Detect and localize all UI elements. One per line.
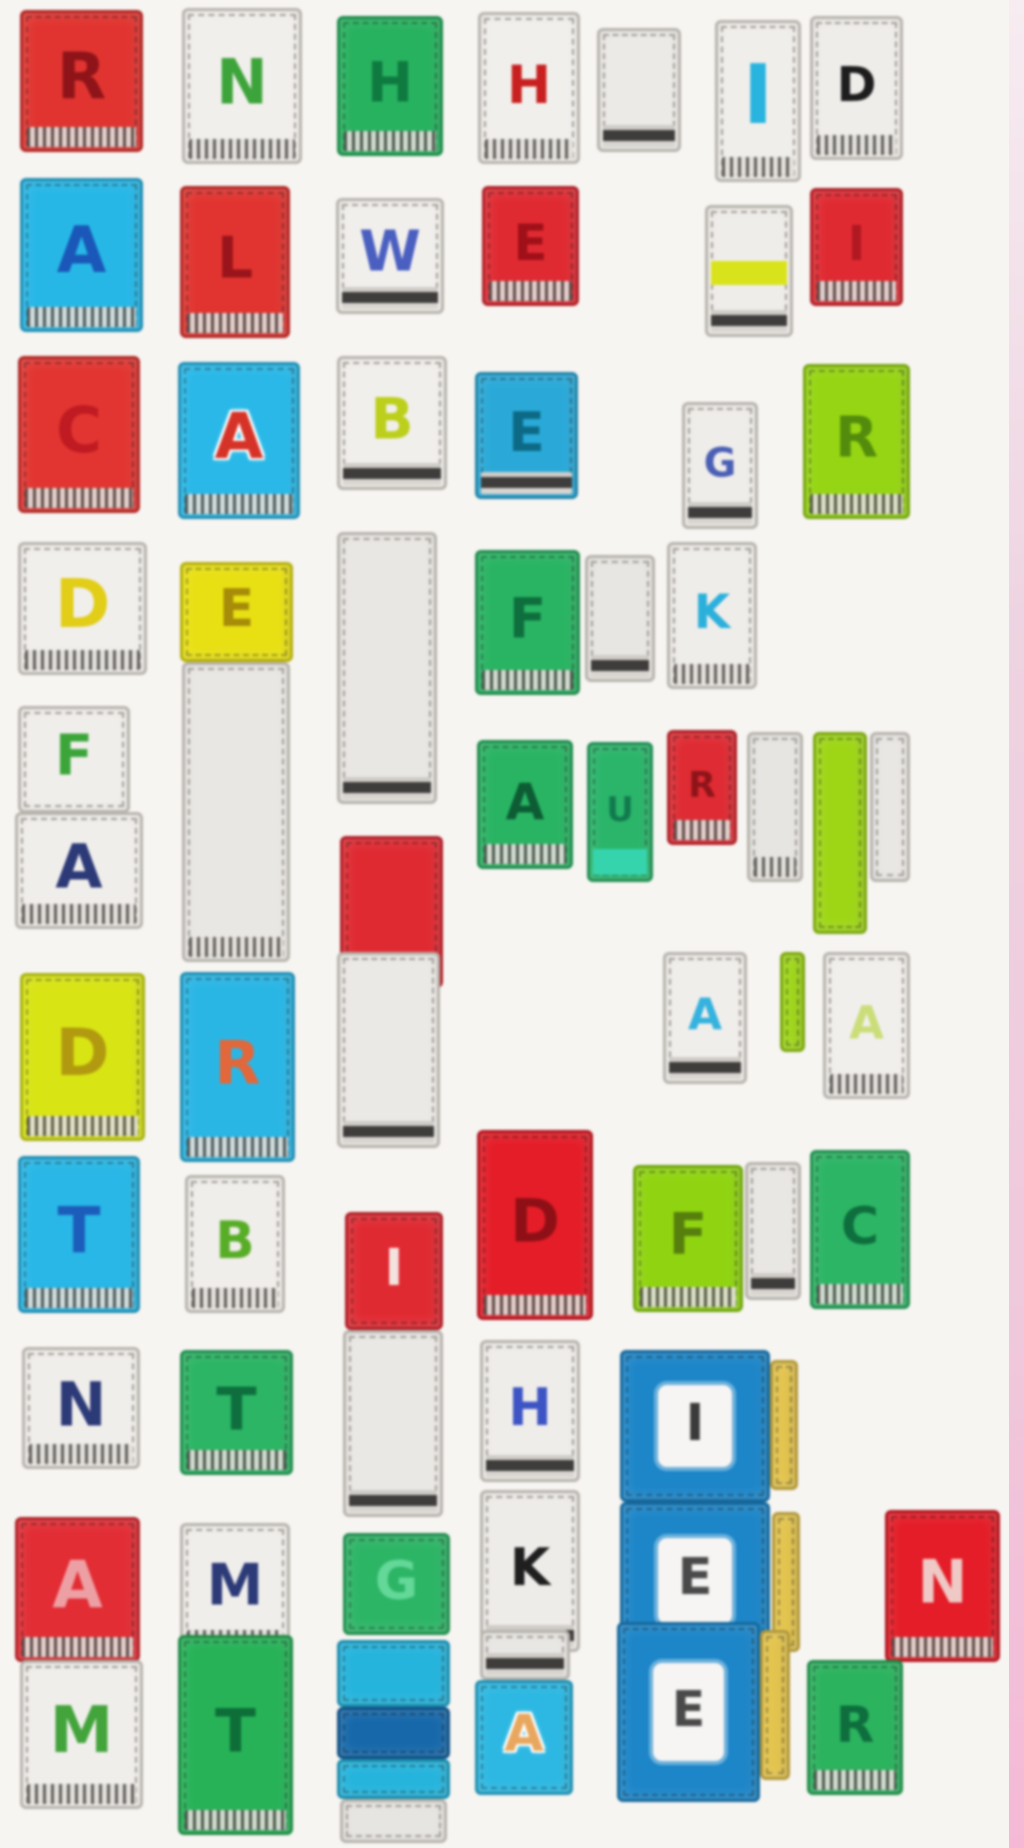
block-fringe	[486, 1653, 564, 1675]
block-fringe	[344, 131, 436, 151]
letter-block-k: K	[667, 542, 757, 689]
block-letter: T	[58, 1199, 101, 1262]
letter-block-a: A	[475, 1680, 573, 1795]
block-fringe	[189, 139, 295, 159]
blank-block	[813, 732, 867, 934]
blank-block	[340, 1799, 447, 1843]
block-letter: C	[56, 399, 102, 462]
block-letter: D	[510, 1191, 560, 1251]
block-letter: H	[508, 1382, 552, 1434]
block-fringe	[817, 281, 896, 301]
letter-block-c: C	[18, 356, 140, 513]
block-letter: B	[370, 391, 413, 448]
letter-block-t: T	[18, 1156, 140, 1313]
letter-block-t: T	[180, 1350, 293, 1475]
letter-block-h: H	[480, 1340, 580, 1482]
block-letter: E	[513, 218, 547, 268]
block-letter: R	[214, 1033, 260, 1093]
block-fringe	[669, 1057, 741, 1079]
block-fringe	[674, 820, 730, 840]
letter-block-a: A	[15, 1517, 140, 1662]
letter-block-a: A	[20, 178, 143, 332]
block-letter: A	[504, 1709, 543, 1760]
letter-block-i: I	[810, 188, 903, 306]
block-fringe	[688, 502, 752, 524]
block-fringe	[343, 1121, 434, 1143]
letter-block-n: N	[182, 8, 302, 164]
cube-face: E	[658, 1538, 733, 1623]
block-letter: B	[215, 1215, 255, 1267]
block-fringe	[27, 307, 136, 327]
block-letter: E	[672, 1685, 705, 1734]
block-letter: I	[743, 55, 774, 137]
letter-block-n: N	[885, 1510, 1000, 1662]
block-letter: N	[917, 1552, 967, 1612]
blank-block	[705, 205, 793, 337]
block-fringe	[722, 157, 794, 177]
block-letter: R	[57, 45, 106, 109]
block-fringe	[187, 1137, 288, 1157]
block-letter: N	[55, 1374, 106, 1435]
block-letter: A	[55, 836, 102, 897]
letter-block-i: I	[715, 20, 801, 182]
block-fringe	[751, 1273, 795, 1295]
letter-block-f: F	[18, 706, 130, 813]
block-letter: A	[57, 219, 107, 283]
letter-block-r: R	[667, 730, 737, 845]
block-letter: H	[507, 58, 551, 111]
blank-block	[337, 952, 440, 1148]
block-letter: E	[508, 405, 545, 459]
color-band	[711, 261, 787, 285]
letter-block-l: L	[180, 186, 290, 338]
letter-block-b: B	[337, 356, 447, 490]
block-letter: I	[848, 220, 866, 268]
letter-block-i: I	[345, 1212, 443, 1330]
block-fringe	[817, 1284, 903, 1304]
block-fringe	[814, 1770, 896, 1790]
block-fringe	[674, 664, 750, 684]
block-letter: D	[837, 61, 877, 109]
block-fringe	[27, 1116, 138, 1136]
block-fringe	[187, 1450, 286, 1470]
block-fringe	[25, 650, 140, 670]
letter-block-g: G	[682, 402, 758, 529]
block-fringe	[711, 310, 787, 332]
block-letter: A	[849, 1000, 884, 1045]
block-letter: H	[367, 55, 413, 110]
blank-block	[182, 662, 290, 962]
block-fringe	[185, 494, 293, 514]
block-fringe	[342, 287, 438, 309]
block-letter: I	[385, 1242, 404, 1293]
blank-block	[585, 555, 655, 682]
blank-block	[337, 1707, 450, 1759]
block-letter: R	[688, 767, 716, 803]
blank-block	[480, 1630, 570, 1680]
block-letter: A	[506, 777, 545, 827]
block-letter: D	[56, 1021, 110, 1086]
block-letter: K	[694, 589, 730, 636]
blank-block	[597, 28, 681, 152]
letter-blocks-collage: RNHHIDALWEICABEGRDEFKFAAURDRAATBIDFCNTHI…	[0, 0, 1024, 1848]
letter-block-r: R	[20, 10, 143, 152]
letter-block-r: R	[807, 1660, 903, 1795]
blank-block	[337, 1640, 450, 1707]
block-letter: T	[215, 1701, 256, 1761]
letter-block-t: T	[178, 1635, 293, 1835]
letter-block-r: R	[180, 972, 295, 1162]
letter-block-a: A	[15, 812, 143, 929]
block-fringe	[591, 655, 649, 677]
letter-block-m: M	[20, 1660, 143, 1809]
blank-block	[747, 732, 803, 882]
blank-block	[337, 532, 437, 804]
letter-block-d: D	[477, 1130, 593, 1320]
block-fringe	[754, 857, 796, 877]
block-fringe	[29, 1444, 133, 1464]
block-fringe	[343, 777, 431, 799]
letter-block-f: F	[475, 550, 580, 695]
block-fringe	[482, 670, 573, 690]
block-letter: A	[215, 405, 264, 468]
letter-block-r: R	[803, 364, 910, 519]
blank-block	[745, 1162, 801, 1300]
letter-block-b: B	[185, 1175, 285, 1313]
block-letter: F	[55, 728, 93, 784]
block-fringe	[185, 1810, 286, 1830]
block-letter: G	[375, 1554, 419, 1607]
letter-block-a: A	[178, 362, 300, 519]
letter-block-d: D	[810, 16, 903, 160]
block-fringe	[25, 488, 133, 508]
blank-block	[343, 1330, 443, 1517]
letter-block-e: E	[482, 186, 579, 306]
letter-block-n: N	[22, 1347, 140, 1469]
block-letter: K	[510, 1542, 550, 1594]
blank-block	[760, 1630, 790, 1780]
block-letter: M	[50, 1699, 114, 1763]
letter-block-d: D	[20, 973, 145, 1141]
block-letter: D	[55, 571, 111, 638]
letter-block-i: I	[620, 1350, 770, 1502]
block-letter: A	[688, 993, 722, 1037]
letter-block-u: U	[587, 742, 653, 882]
block-fringe	[349, 1490, 437, 1512]
letter-block-h: H	[337, 16, 443, 156]
block-fringe	[27, 127, 136, 147]
letter-block-e: E	[617, 1622, 760, 1802]
block-letter: C	[841, 1200, 879, 1252]
block-letter: U	[606, 793, 634, 827]
block-letter: G	[704, 443, 737, 483]
block-fringe	[481, 472, 572, 494]
letter-block-e: E	[475, 372, 578, 499]
block-letter: W	[359, 225, 421, 281]
block-fringe	[22, 1637, 133, 1657]
block-letter: E	[678, 1552, 713, 1603]
letter-block-e: E	[180, 562, 293, 662]
block-fringe	[640, 1287, 736, 1307]
letter-block-d: D	[18, 542, 147, 675]
block-fringe	[817, 135, 896, 155]
block-letter: F	[509, 592, 547, 647]
block-letter: R	[836, 1700, 875, 1750]
block-fringe	[603, 125, 675, 147]
block-letter: L	[217, 230, 253, 287]
block-letter: M	[207, 1557, 264, 1614]
color-band	[593, 849, 647, 875]
letter-block-h: H	[478, 12, 580, 164]
block-fringe	[810, 494, 903, 514]
block-fringe	[22, 904, 136, 924]
letter-block-k: K	[480, 1490, 580, 1652]
cube-face: I	[658, 1385, 733, 1467]
block-letter: A	[52, 1553, 102, 1618]
block-fringe	[343, 463, 441, 485]
block-fringe	[192, 1288, 278, 1308]
letter-block-w: W	[336, 198, 444, 314]
block-fringe	[489, 281, 572, 301]
blank-block	[780, 952, 805, 1052]
block-letter: F	[669, 1207, 708, 1264]
block-fringe	[892, 1637, 993, 1657]
blank-block	[337, 1759, 450, 1799]
letter-block-a: A	[823, 952, 910, 1099]
blank-block	[770, 1360, 798, 1490]
block-fringe	[27, 1784, 136, 1804]
block-fringe	[187, 313, 283, 333]
block-fringe	[486, 1455, 574, 1477]
pink-edge-strip	[1009, 0, 1024, 1848]
block-fringe	[25, 1288, 133, 1308]
block-letter: E	[219, 583, 255, 635]
cube-face: E	[653, 1663, 724, 1760]
block-fringe	[484, 1295, 586, 1315]
blank-block	[870, 732, 910, 882]
block-fringe	[830, 1074, 903, 1094]
letter-block-f: F	[633, 1165, 743, 1312]
letter-block-a: A	[663, 952, 747, 1084]
block-letter: T	[216, 1379, 256, 1438]
block-letter: I	[686, 1397, 705, 1448]
block-fringe	[485, 139, 573, 159]
block-fringe	[189, 937, 283, 957]
letter-block-g: G	[343, 1533, 450, 1635]
block-letter: N	[216, 51, 268, 113]
block-fringe	[484, 844, 566, 864]
letter-block-c: C	[810, 1150, 910, 1309]
blocks-scene: RNHHIDALWEICABEGRDEFKFAAURDRAATBIDFCNTHI…	[0, 0, 1024, 1848]
block-letter: R	[835, 410, 878, 466]
letter-block-a: A	[477, 740, 573, 869]
